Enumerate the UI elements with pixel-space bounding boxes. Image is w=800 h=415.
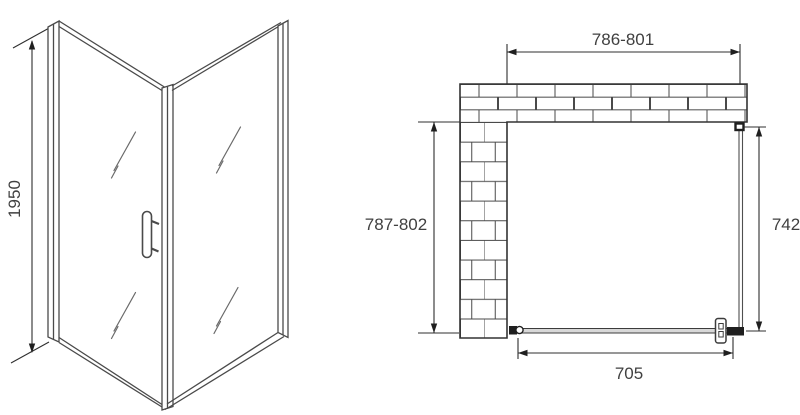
- shower-enclosure-drawing: 1950: [0, 0, 800, 415]
- door-glass-line: [521, 329, 731, 334]
- right-glass-label: 742: [772, 215, 800, 234]
- corner-block: [727, 327, 744, 336]
- left-wall-profile: [48, 21, 59, 342]
- technical-drawing-page: 1950: [0, 0, 800, 415]
- door-handle-plan: [716, 319, 727, 344]
- brick-wall-top: [460, 84, 747, 122]
- corner-post-profile: [162, 85, 173, 411]
- left-depth-label: 787-802: [365, 215, 427, 234]
- right-wall-profile: [278, 21, 288, 338]
- hinge-pin: [516, 326, 523, 333]
- brick-wall-left: [460, 122, 507, 338]
- height-dimension-label: 1950: [5, 180, 24, 218]
- wall-bracket: [736, 124, 744, 131]
- top-width-label: 786-801: [592, 30, 654, 49]
- door-width-label: 705: [615, 364, 643, 383]
